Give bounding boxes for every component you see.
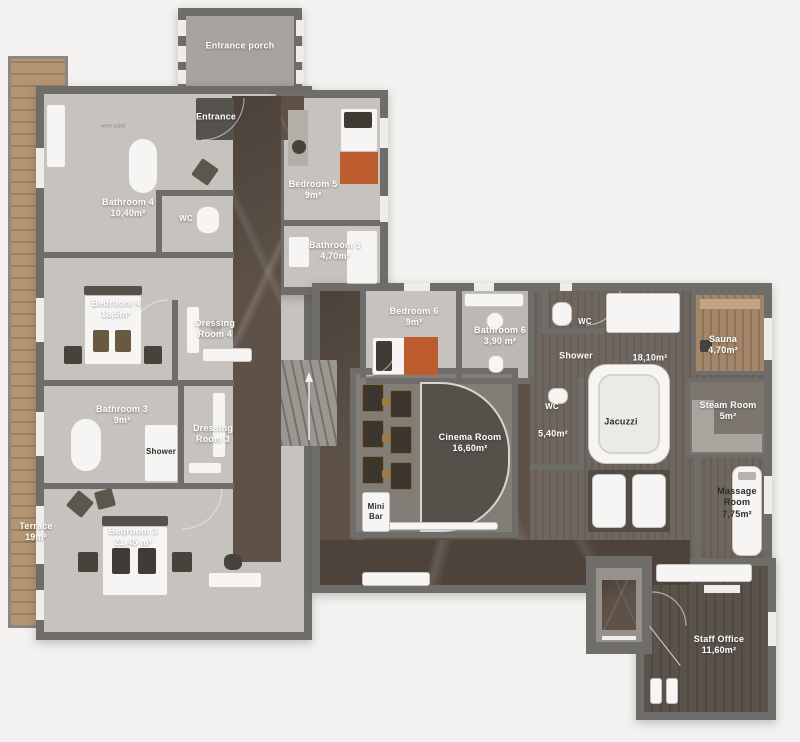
label-area: 9m² — [289, 190, 338, 201]
room-label-wc-spa-top: WC — [578, 317, 592, 327]
window-gap — [704, 585, 740, 593]
window-gap — [36, 148, 44, 188]
label-text: Bathroom 5 — [309, 240, 361, 250]
partition-wall — [44, 483, 234, 489]
pillow — [112, 548, 130, 574]
office-step — [650, 678, 662, 704]
partition-wall — [44, 380, 234, 386]
desk-icon — [208, 572, 262, 588]
label-area: 4,70m² — [309, 251, 361, 262]
label-text: Sauna — [709, 334, 737, 344]
room-label-small-room: 5,40m² — [538, 428, 568, 439]
steam-bench — [692, 434, 762, 452]
label-area: 16,60m² — [439, 443, 502, 454]
cinema-seat — [390, 462, 412, 490]
console-bench — [362, 572, 430, 586]
pillow — [115, 330, 131, 352]
daybed-icon — [606, 293, 680, 333]
pillow — [93, 330, 109, 352]
window-gap — [560, 283, 572, 291]
window-gap — [380, 118, 388, 148]
label-text: WC — [578, 317, 592, 326]
label-text: Shower — [146, 447, 176, 456]
label-text: Cinema Room — [439, 432, 502, 442]
label-area: 11,60m² — [694, 645, 744, 656]
lounger-icon — [592, 474, 626, 528]
jacuzzi-basin — [598, 374, 660, 454]
cinema-seat — [390, 426, 412, 454]
label-area: 19m² — [19, 532, 52, 543]
chair-icon — [224, 554, 242, 570]
nightstand — [78, 552, 98, 572]
wc-wall — [578, 378, 584, 470]
massage-pillow — [738, 472, 756, 480]
wardrobe-icon — [202, 348, 252, 362]
window-gap — [380, 196, 388, 222]
bed4-headboard — [84, 286, 142, 295]
partition-wall — [178, 386, 184, 489]
bench-icon — [188, 462, 222, 474]
label-text: Dressing Room 3 — [193, 423, 233, 444]
chair-icon — [292, 140, 306, 154]
pillow — [376, 341, 392, 371]
room-label-bedroom-3: Bedroom 3 21,45 m² — [109, 526, 158, 549]
room-label-steam-room: Steam Room 5m² — [699, 400, 756, 423]
cinema-seat — [362, 456, 384, 484]
label-text: Shower — [559, 350, 593, 360]
room-label-mini-bar: Mini Bar — [365, 502, 387, 522]
window-gap — [474, 283, 494, 291]
toilet-icon — [488, 355, 504, 373]
pillow — [138, 548, 156, 574]
wc-wall — [542, 291, 548, 334]
label-area: 18,5m² — [92, 309, 141, 320]
desk-icon — [288, 110, 308, 166]
label-text: Bedroom 3 — [109, 526, 158, 536]
room-label-bedroom-5: Bedroom 5 9m² — [289, 179, 338, 202]
room-label-staff-office: Staff Office 11,60m² — [694, 634, 744, 657]
room-label-entrance: Entrance — [196, 111, 236, 122]
massage-wall — [694, 458, 700, 562]
window-gap — [764, 476, 772, 514]
elevator-door — [602, 636, 636, 640]
room-label-shower-spa: Shower — [559, 350, 593, 361]
porch-pillar-gap — [178, 20, 186, 36]
window-gap — [404, 283, 430, 291]
label-text: Bedroom 6 — [390, 306, 439, 316]
room-label-terrace: Terrace 19m² — [19, 521, 52, 544]
label-area: 3,90 m² — [474, 336, 526, 347]
label-text: Bedroom 4 — [92, 298, 141, 308]
label-text: Terrace — [19, 521, 52, 531]
bed6-blanket — [404, 337, 438, 375]
label-text: Jacuzzi — [604, 416, 637, 426]
label-text: Bathroom 4 — [102, 197, 154, 207]
label-area: 10,40m² — [102, 208, 154, 219]
label-area: 9m² — [96, 415, 148, 426]
label-text: WC — [545, 402, 559, 411]
side-table — [382, 470, 390, 478]
label-text: Massage Room — [717, 486, 756, 507]
sauna-bench — [700, 299, 760, 309]
label-text: Bathroom 3 — [96, 404, 148, 414]
window-gap — [36, 590, 44, 620]
toilet-icon — [552, 302, 572, 326]
cinema-seat — [390, 390, 412, 418]
floor-plan: Entrance porch Entrance verre sablé Bath… — [0, 0, 800, 742]
label-area: 7,75m² — [712, 509, 762, 520]
partition-wall — [528, 291, 534, 378]
office-cabinet — [656, 564, 752, 582]
label-text: Dressing Room 4 — [195, 318, 235, 339]
partition-wall — [360, 291, 366, 378]
partition-wall — [156, 190, 162, 258]
lounger-icon — [632, 474, 666, 528]
porch-pillar-gap — [296, 46, 304, 62]
label-text: Staff Office — [694, 634, 744, 644]
partition-wall — [156, 190, 234, 196]
room-label-massage-room: Massage Room 7,75m² — [712, 486, 762, 520]
pillow — [344, 112, 372, 128]
wc-wall — [530, 464, 584, 470]
room-label-dressing-3: Dressing Room 3 — [185, 423, 241, 446]
label-area: 5m² — [699, 411, 756, 422]
staircase — [281, 360, 337, 446]
nightstand — [64, 346, 82, 364]
label-area: 18,10m² — [633, 352, 668, 362]
label-text: Entrance porch — [206, 40, 275, 50]
room-label-bathroom-4: Bathroom 4 10,40m² — [102, 197, 154, 220]
toilet-icon — [196, 206, 220, 234]
partition-wall — [44, 252, 234, 258]
nightstand — [172, 552, 192, 572]
room-label-cinema: Cinema Room 16,60m² — [439, 432, 502, 455]
room-label-wc-4: WC — [179, 214, 193, 224]
side-table — [382, 434, 390, 442]
porch-pillar-gap — [296, 20, 304, 36]
bed3-headboard — [102, 516, 168, 526]
room-label-bathroom-6: Bathroom 6 3,90 m² — [474, 325, 526, 348]
cinema-seat — [362, 384, 384, 412]
label-text: Bedroom 5 — [289, 179, 338, 189]
porch-pillar-gap — [296, 70, 304, 84]
room-label-hammam-area: 18,10m² — [633, 352, 668, 363]
porch-pillar-gap — [178, 46, 186, 62]
label-text: WC — [179, 214, 193, 223]
partition-wall — [456, 291, 462, 378]
bathtub-icon — [128, 138, 158, 194]
room-label-bathroom-5: Bathroom 5 4,70m² — [309, 240, 361, 263]
label-area: 9m² — [390, 317, 439, 328]
room-label-bathroom-3: Bathroom 3 9m² — [96, 404, 148, 427]
room-label-sauna: Sauna 4,70m² — [708, 334, 738, 357]
room-label-entrance-porch: Entrance porch — [206, 40, 275, 51]
label-text: Steam Room — [699, 400, 756, 410]
window-gap — [768, 612, 776, 646]
bathtub-icon — [464, 293, 524, 307]
room-label-bedroom-4: Bedroom 4 18,5m² — [92, 298, 141, 321]
label-text: Entrance — [196, 111, 236, 121]
porch-pillar-gap — [178, 70, 186, 84]
office-step — [666, 678, 678, 704]
room-label-bedroom-6: Bedroom 6 9m² — [390, 306, 439, 329]
window-gap — [764, 318, 772, 360]
room-label-wc-spa: WC — [545, 402, 559, 412]
label-area: 5,40m² — [538, 428, 568, 438]
room-label-dressing-4: Dressing Room 4 — [187, 318, 243, 341]
window-gap — [36, 412, 44, 456]
room-label-jacuzzi: Jacuzzi — [604, 416, 637, 427]
partition-wall — [284, 220, 380, 226]
label-text: Bathroom 6 — [474, 325, 526, 335]
label-area: 21,45 m² — [109, 537, 158, 548]
wc-wall — [542, 328, 604, 334]
label-text: Mini Bar — [368, 502, 385, 521]
room-label-shower-3: Shower — [146, 447, 176, 457]
label-text: verre sablé — [101, 124, 126, 130]
cinema-seat — [362, 420, 384, 448]
bed5-blanket — [340, 152, 378, 184]
small-annotation: verre sablé — [101, 125, 126, 130]
nightstand — [144, 346, 162, 364]
label-area: 4,70m² — [708, 345, 738, 356]
sink-icon — [288, 236, 310, 268]
partition-wall — [172, 300, 178, 386]
elevator-cab — [602, 580, 636, 630]
window-gap — [36, 298, 44, 342]
vanity-icon — [46, 104, 66, 168]
side-table — [382, 398, 390, 406]
